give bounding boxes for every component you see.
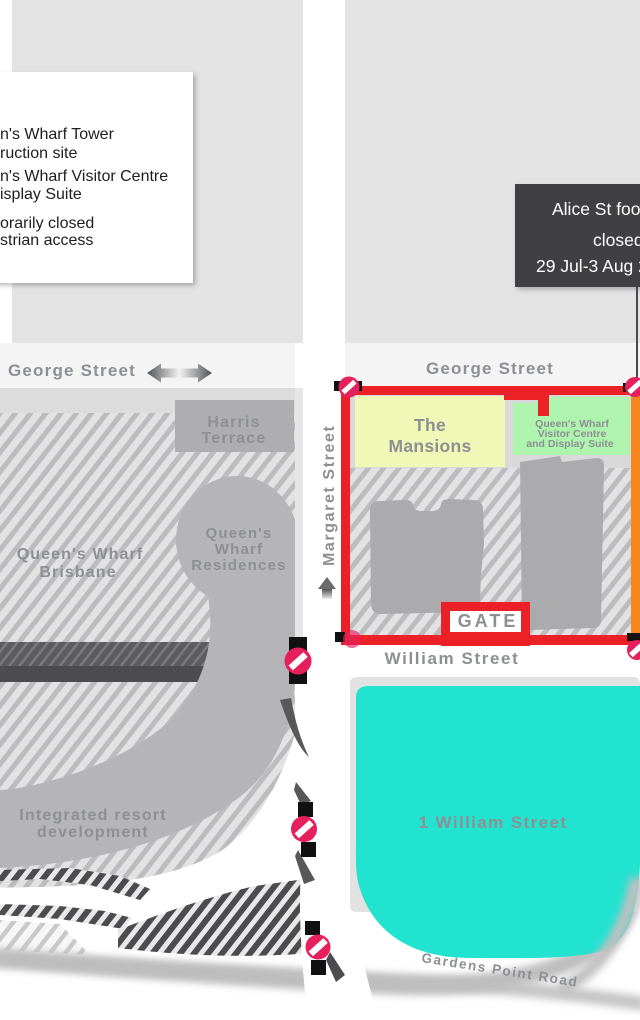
svg-text:1 William Street: 1 William Street — [419, 813, 568, 832]
svg-text:William Street: William Street — [385, 649, 520, 668]
svg-text:Mansions: Mansions — [388, 436, 471, 456]
svg-text:development: development — [37, 824, 149, 841]
svg-text:strian access: strian access — [0, 232, 93, 249]
svg-text:Queen's Wharf: Queen's Wharf — [17, 546, 144, 563]
svg-text:The: The — [414, 415, 446, 435]
svg-text:Margaret Street: Margaret Street — [321, 425, 338, 566]
svg-text:n's Wharf Visitor Centre: n's Wharf Visitor Centre — [0, 168, 168, 185]
svg-text:29 Jul-3 Aug 2019: 29 Jul-3 Aug 2019 — [536, 256, 640, 276]
svg-text:isplay Suite: isplay Suite — [0, 186, 82, 203]
svg-text:ruction site: ruction site — [0, 145, 77, 162]
svg-text:Integrated resort: Integrated resort — [19, 807, 167, 824]
svg-text:Residences: Residences — [191, 557, 286, 574]
svg-text:closed: closed — [593, 230, 640, 250]
svg-text:Harris: Harris — [207, 414, 260, 431]
svg-text:GATE: GATE — [458, 611, 519, 631]
svg-text:orarily closed: orarily closed — [0, 215, 94, 232]
svg-text:George Street: George Street — [426, 359, 554, 378]
svg-text:Queen's: Queen's — [206, 525, 273, 542]
svg-text:George Street: George Street — [8, 361, 136, 380]
svg-text:and Display Suite: and Display Suite — [526, 438, 614, 450]
svg-text:Alice St footpath: Alice St footpath — [552, 199, 640, 219]
svg-text:Brisbane: Brisbane — [39, 564, 116, 581]
svg-text:Terrace: Terrace — [201, 430, 266, 447]
svg-text:Wharf: Wharf — [215, 541, 264, 558]
svg-text:n's Wharf Tower: n's Wharf Tower — [0, 126, 115, 143]
